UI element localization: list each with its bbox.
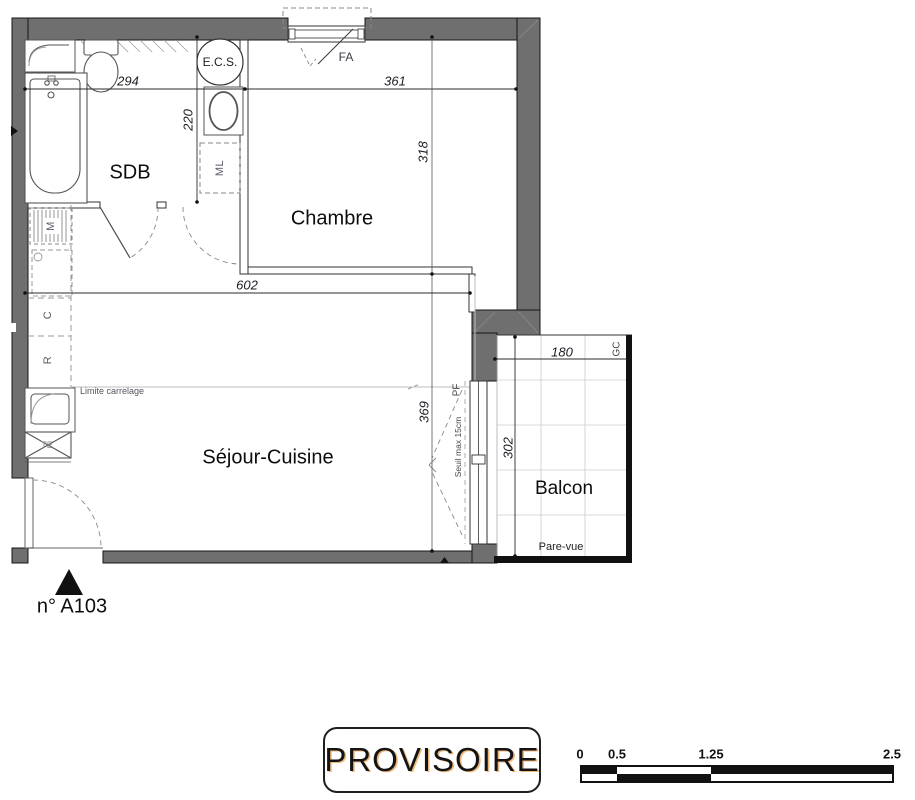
provisional-stamp: PROVISOIRE — [323, 727, 541, 793]
label-r: R — [42, 356, 54, 364]
label-seuil: Seuil max 15cm — [453, 417, 463, 477]
scale-tick-125: 1.25 — [698, 747, 723, 762]
vanity-sink — [25, 40, 75, 72]
room-label-chambre: Chambre — [291, 208, 373, 231]
bathtub — [25, 73, 87, 203]
dim-balcon-height: 302 — [501, 437, 516, 459]
label-ml: ML — [214, 160, 226, 176]
label-pare-vue: Pare-vue — [539, 541, 584, 553]
scale-tick-05: 0.5 — [608, 747, 626, 762]
room-label-sdb: SDB — [109, 162, 150, 185]
label-limite-carrelage: Limite carrelage — [80, 386, 144, 396]
dim-chambre-width: 361 — [384, 74, 406, 89]
scale-tick-0: 0 — [576, 747, 583, 762]
room-label-sejour: Séjour-Cuisine — [202, 447, 333, 470]
dim-sejour-width: 602 — [236, 278, 258, 293]
label-ecs: E.C.S. — [203, 55, 238, 69]
exterior-walls — [12, 18, 540, 563]
dim-balcon-width: 180 — [551, 345, 573, 360]
unit-number-label: n° A103 — [37, 596, 107, 619]
balcony-guardrail — [626, 335, 632, 562]
floorplan-canvas: SDB Chambre Séjour-Cuisine Balcon E.C.S.… — [0, 0, 915, 800]
floorplan-linework — [0, 0, 915, 800]
unit-marker-triangle — [55, 569, 83, 595]
dim-sdb-width: 294 — [117, 74, 139, 89]
bedroom-door — [183, 207, 240, 264]
label-fa: FA — [339, 50, 354, 64]
provisional-stamp-text: PROVISOIRE — [324, 741, 539, 779]
washbasin — [204, 87, 243, 135]
toilet — [84, 40, 118, 92]
scale-bar-blocks — [580, 765, 894, 783]
entrance-door — [25, 478, 103, 548]
dim-sdb-height: 220 — [181, 109, 196, 131]
room-label-balcon: Balcon — [535, 478, 593, 500]
kitchen-sink — [25, 388, 75, 432]
label-gc: GC — [612, 342, 623, 357]
label-m: M — [45, 221, 57, 231]
bathroom-door — [100, 207, 158, 258]
label-c: C — [42, 311, 54, 319]
dim-chambre-height: 318 — [416, 141, 431, 163]
kitchen-worktop-box — [32, 250, 72, 296]
dim-sejour-height: 369 — [417, 401, 432, 423]
label-pf: PF — [452, 384, 463, 397]
scale-tick-25: 2.5 — [883, 747, 901, 762]
label-te: TE — [41, 440, 53, 450]
bedroom-window-fa — [283, 8, 371, 66]
